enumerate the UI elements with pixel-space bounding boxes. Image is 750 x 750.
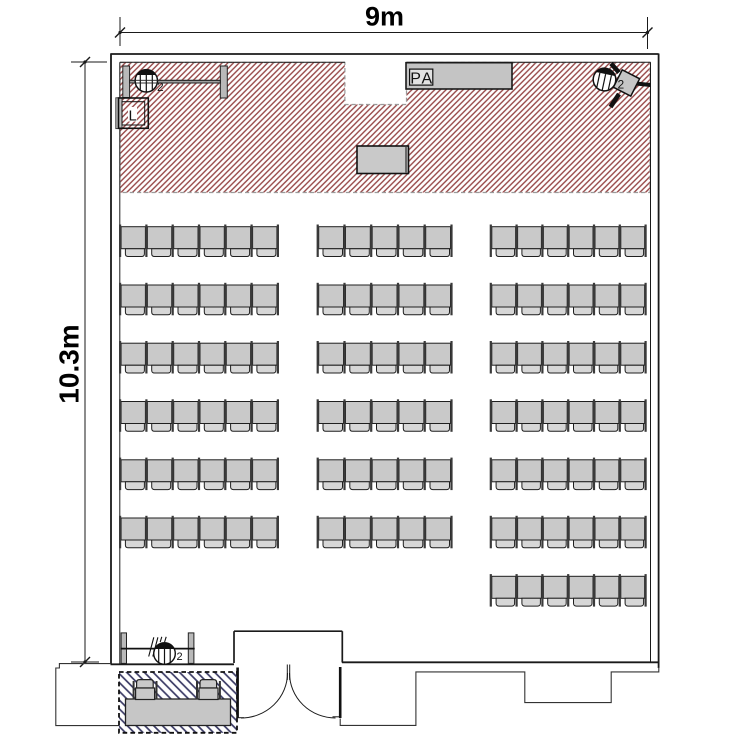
- svg-text:2: 2: [618, 78, 625, 92]
- svg-text:PA: PA: [410, 70, 432, 87]
- svg-text:2: 2: [177, 651, 183, 663]
- svg-text:9m: 9m: [365, 2, 404, 32]
- svg-text:L: L: [129, 108, 137, 125]
- svg-text:10.3m: 10.3m: [54, 324, 85, 403]
- svg-text:2: 2: [157, 80, 164, 94]
